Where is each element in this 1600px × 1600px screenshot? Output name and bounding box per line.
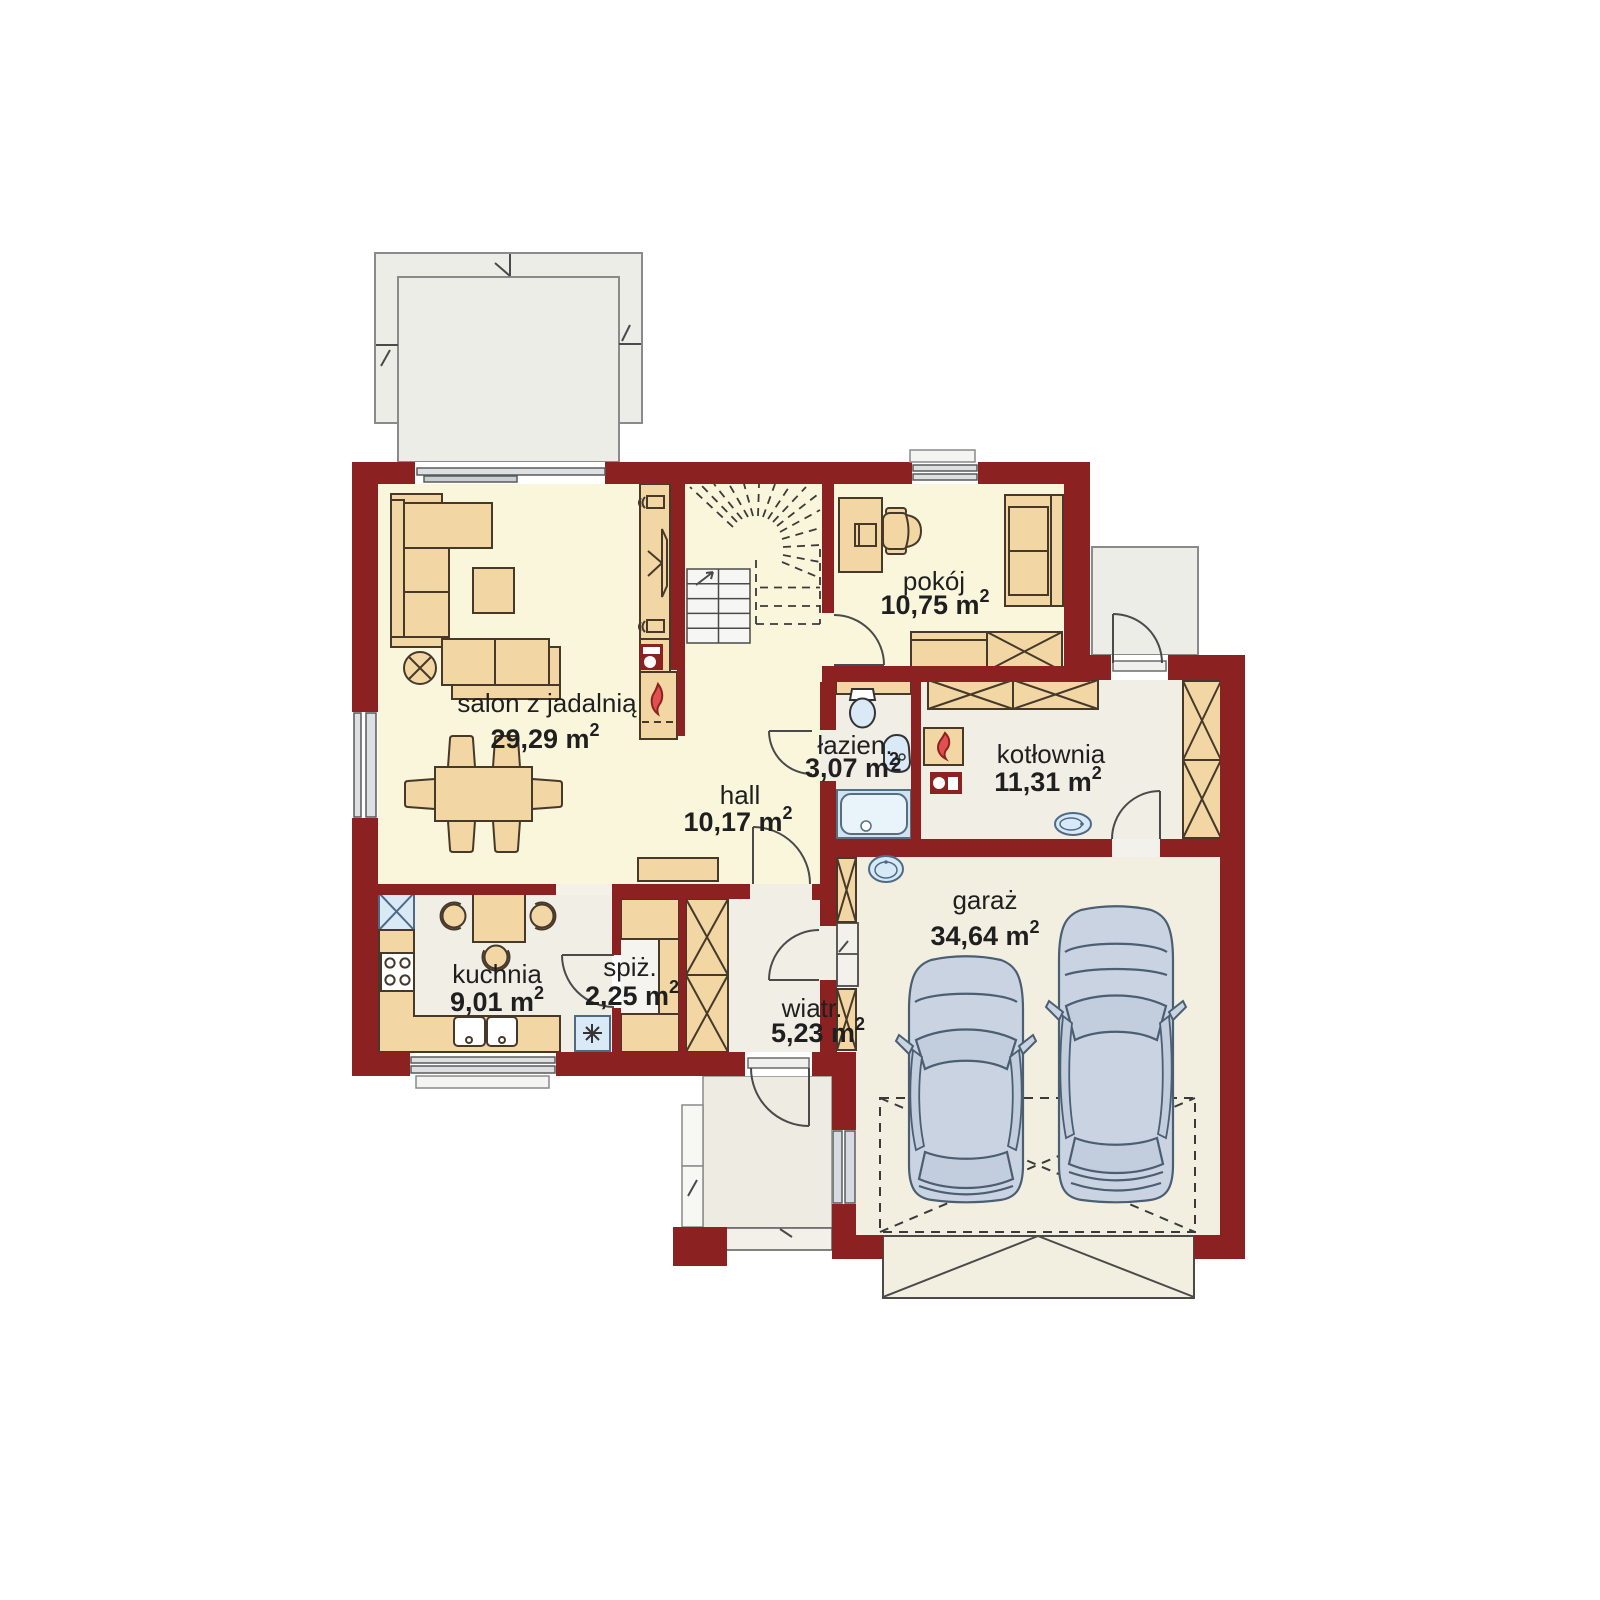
- svg-text:kuchnia: kuchnia: [452, 959, 542, 989]
- svg-text:kotłownia: kotłownia: [997, 739, 1106, 769]
- svg-text:29,29 m2: 29,29 m2: [490, 720, 599, 754]
- svg-text:2,25 m2: 2,25 m2: [585, 977, 679, 1011]
- svg-text:10,17 m2: 10,17 m2: [683, 803, 792, 837]
- svg-text:spiż.: spiż.: [603, 952, 656, 982]
- svg-text:34,64 m2: 34,64 m2: [930, 917, 1039, 951]
- svg-text:5,23 m2: 5,23 m2: [771, 1014, 865, 1048]
- svg-text:11,31 m2: 11,31 m2: [994, 763, 1102, 797]
- svg-text:10,75 m2: 10,75 m2: [880, 586, 989, 620]
- svg-text:9,01 m2: 9,01 m2: [450, 983, 544, 1017]
- svg-text:salon z jadalnią: salon z jadalnią: [457, 688, 637, 718]
- svg-text:garaż: garaż: [952, 885, 1017, 915]
- svg-text:hall: hall: [720, 780, 760, 810]
- svg-text:3,07 m2: 3,07 m2: [805, 749, 899, 783]
